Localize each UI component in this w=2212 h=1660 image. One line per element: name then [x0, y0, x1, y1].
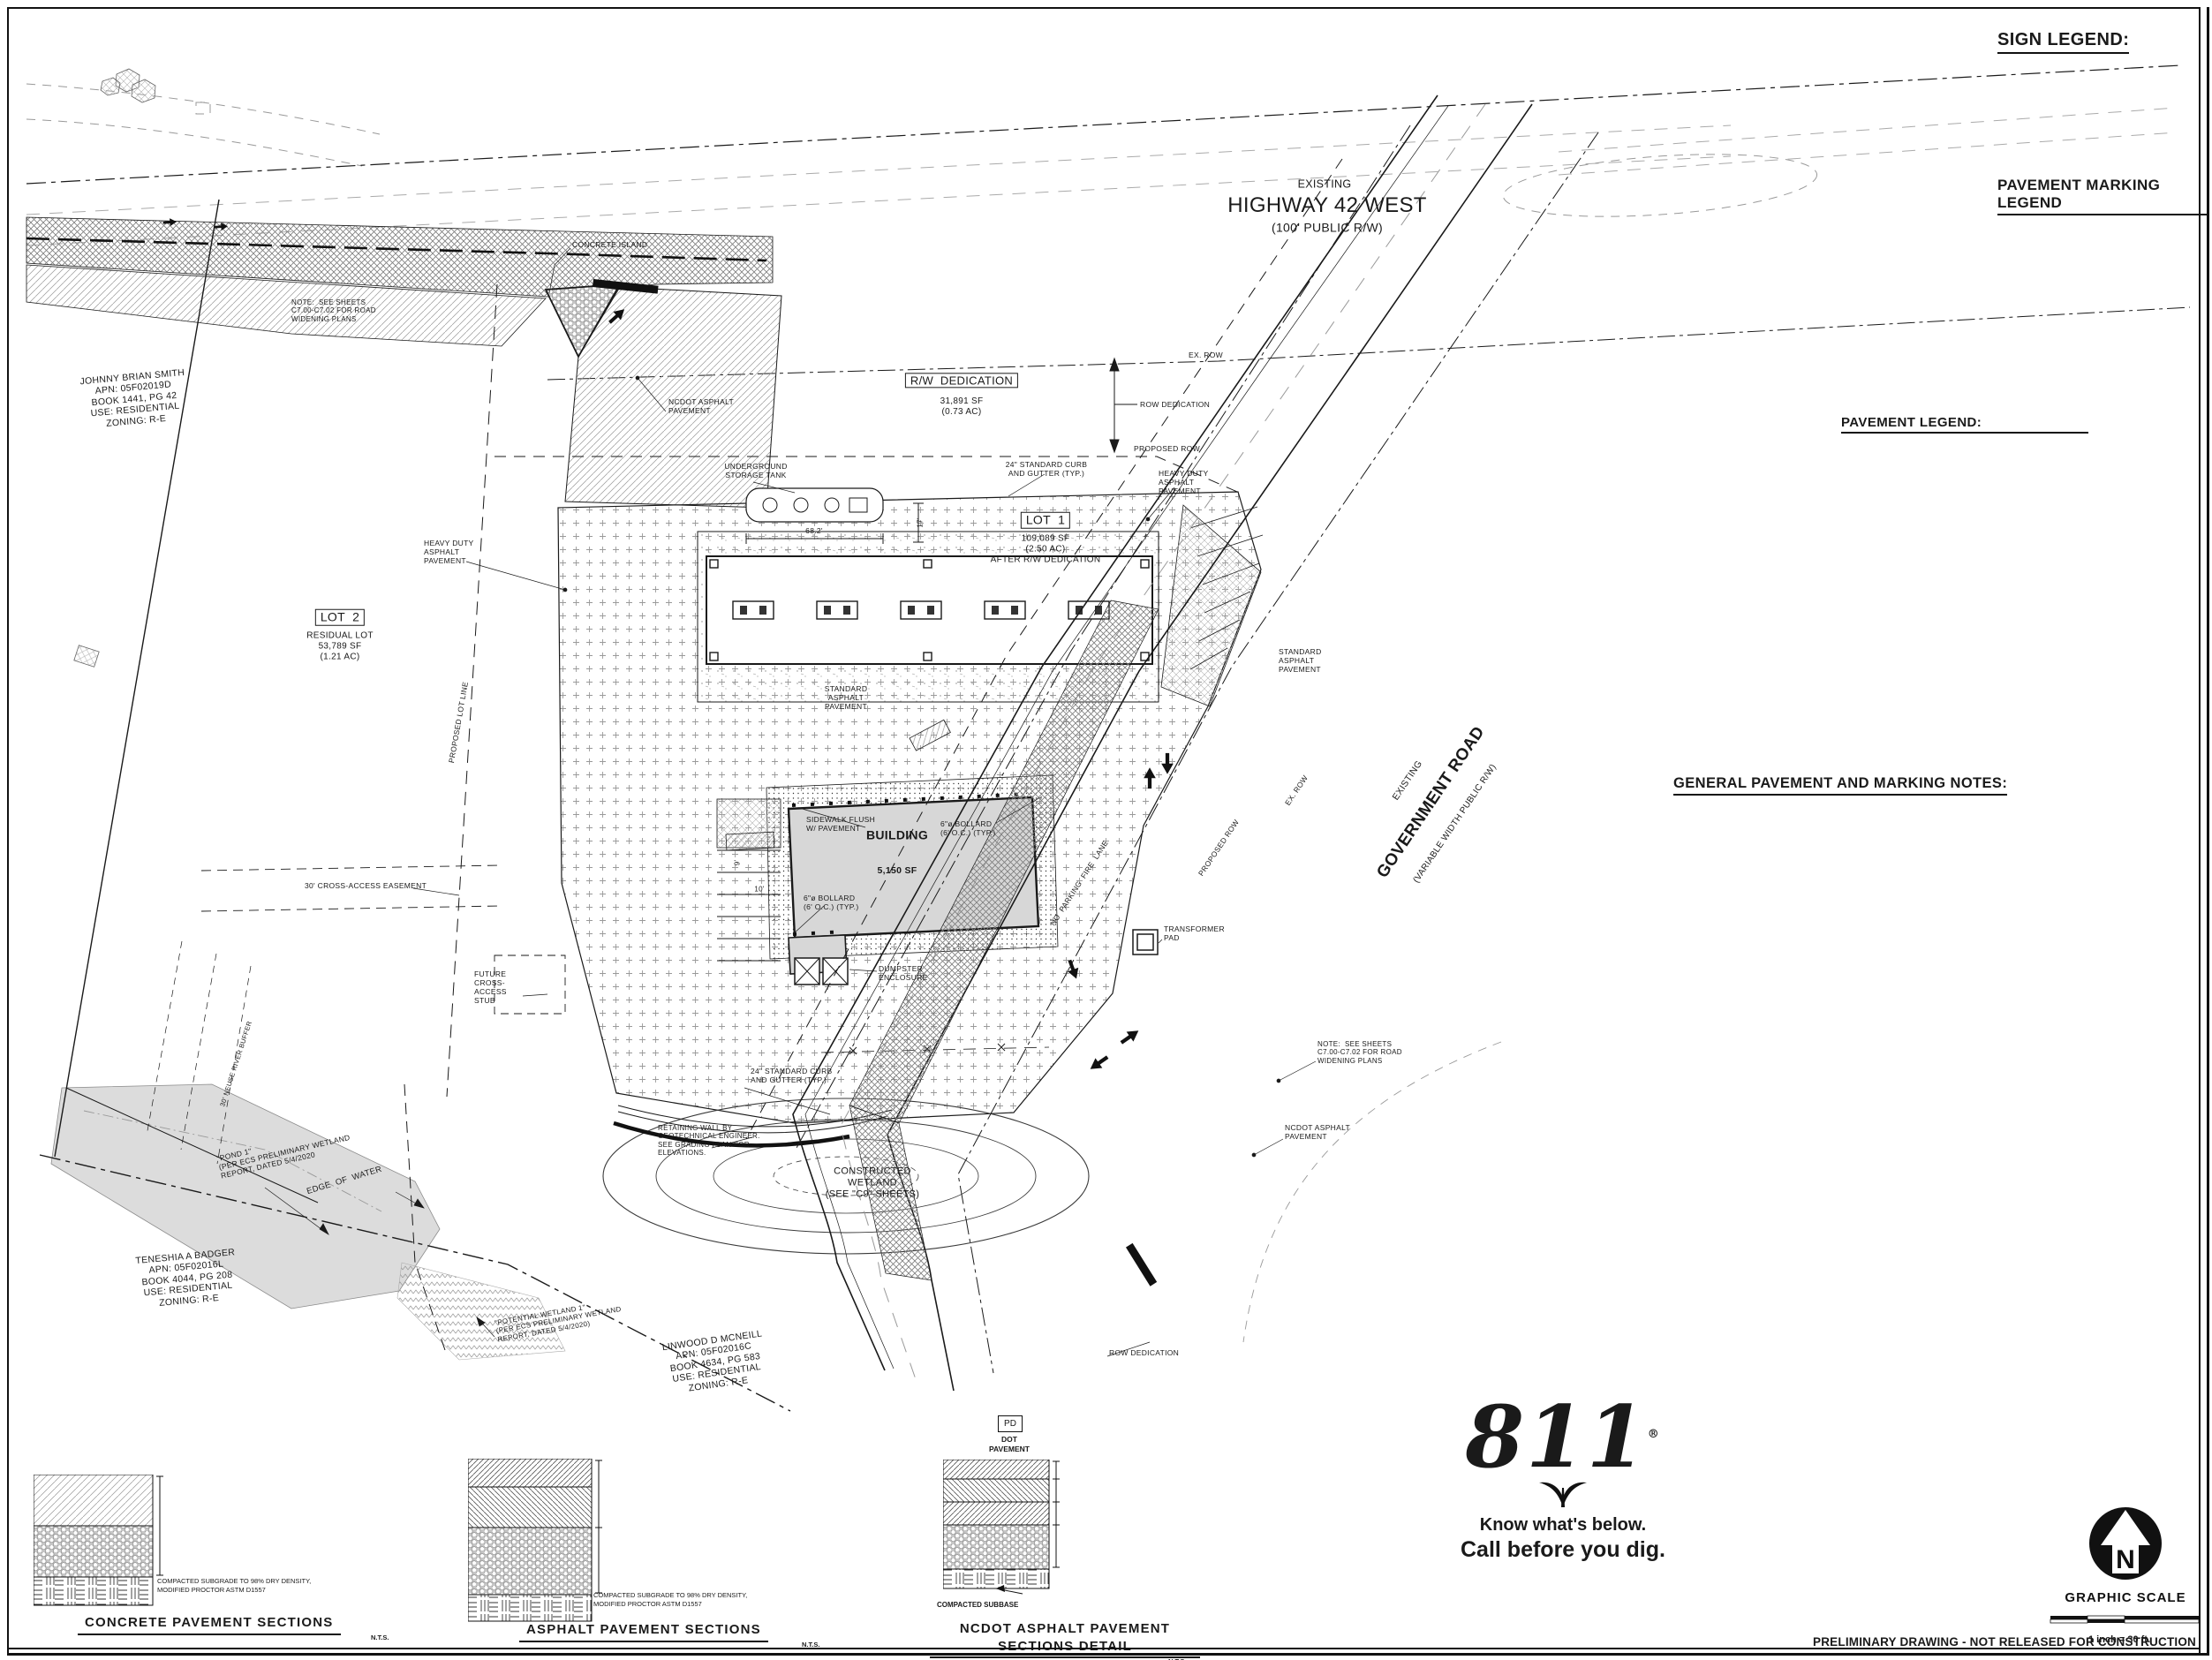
- ncdot-code-label: DOT PAVEMENT: [965, 1435, 1053, 1454]
- notes-title: GENERAL PAVEMENT AND MARKING NOTES:: [1673, 775, 2007, 796]
- concrete-nts: N.T.S.: [371, 1634, 389, 1641]
- logo-know-line: Know what's below.: [1448, 1515, 1678, 1535]
- concrete-sections-detail: COMPACTED SUBGRADE TO 98% DRY DENSITY, M…: [34, 1434, 422, 1655]
- north-arrow-icon: N GRAPHIC SCALE: [2031, 1494, 2208, 1626]
- scale-bar: [2050, 1616, 2199, 1623]
- concrete-subgrade-note: COMPACTED SUBGRADE TO 98% DRY DENSITY, M…: [157, 1577, 321, 1595]
- scale-area: N GRAPHIC SCALE 1 inch = 30 ft.: [2031, 1494, 2208, 1645]
- border-left: [7, 7, 9, 1653]
- border-top: [7, 7, 2200, 9]
- sign-legend: SIGN LEGEND:: [1997, 30, 2205, 63]
- logo-call-line: Call before you dig.: [1448, 1537, 1678, 1563]
- preliminary-stamp: PRELIMINARY DRAWING - NOT RELEASED FOR C…: [1813, 1635, 2196, 1649]
- asphalt-section-graphic: [468, 1459, 605, 1626]
- ncdot-sections-detail: PD DOT PAVEMENT COMPACTED SUBBASE NCDOT …: [914, 1408, 1205, 1660]
- ncdot-subbase-label: COMPACTED SUBBASE: [937, 1601, 1018, 1609]
- plan-sheet: EXISTINGHIGHWAY 42 WEST(100' PUBLIC R/W)…: [0, 0, 2212, 1660]
- asphalt-title: ASPHALT PAVEMENT SECTIONS: [519, 1621, 768, 1642]
- ncdot-section-graphic: [943, 1460, 1062, 1596]
- concrete-section-graphic: [34, 1475, 166, 1607]
- pavement-legend: PAVEMENT LEGEND:: [1841, 415, 2212, 434]
- asphalt-subgrade-note: COMPACTED SUBGRADE TO 98% DRY DENSITY, M…: [593, 1591, 757, 1609]
- marking-legend-title: PAVEMENT MARKING LEGEND: [1997, 177, 2208, 215]
- call-811-logo: 811® Know what's below. Call before you …: [1448, 1397, 1678, 1563]
- border-right-outer: [2207, 7, 2209, 1655]
- concrete-title: CONCRETE PAVEMENT SECTIONS: [78, 1614, 341, 1635]
- hand-plant-icon: [1532, 1472, 1594, 1509]
- general-notes: GENERAL PAVEMENT AND MARKING NOTES:: [1673, 775, 2201, 806]
- border-bottom-inner: [7, 1648, 2200, 1649]
- border-right-inner: [2199, 7, 2201, 1655]
- logo-811-number: 811®: [1448, 1397, 1678, 1477]
- registered-mark: ®: [1648, 1428, 1661, 1441]
- north-letter: N: [2116, 1545, 2135, 1574]
- asphalt-sections-detail: COMPACTED SUBGRADE TO 98% DRY DENSITY, M…: [459, 1434, 848, 1659]
- pavement-marking-legend: PAVEMENT MARKING LEGEND: [1997, 177, 2208, 215]
- graphic-scale-title: GRAPHIC SCALE: [2065, 1590, 2186, 1605]
- pavement-legend-title: PAVEMENT LEGEND:: [1841, 415, 2088, 434]
- ncdot-code-box: PD: [998, 1415, 1023, 1432]
- border-bottom-outer: [7, 1653, 2209, 1656]
- sign-legend-title: SIGN LEGEND:: [1997, 30, 2129, 54]
